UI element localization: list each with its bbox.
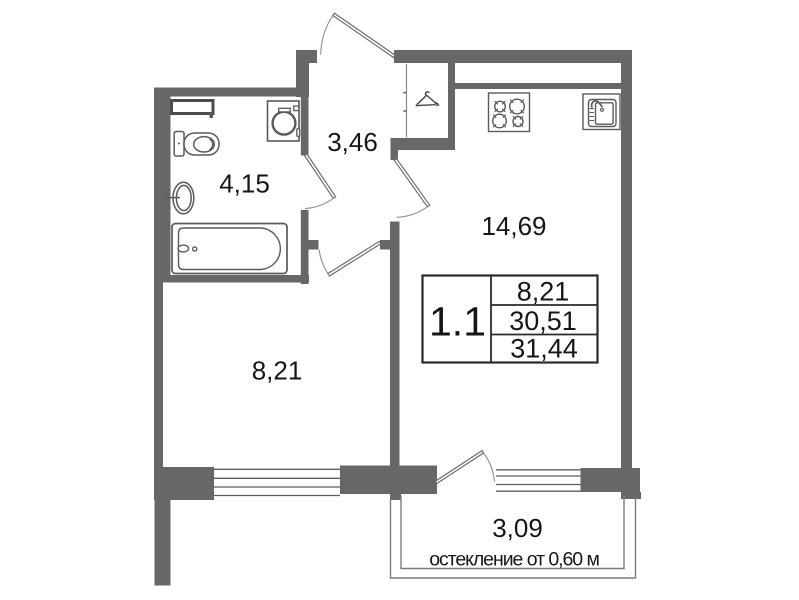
svg-text:8,21: 8,21 — [252, 356, 303, 386]
svg-text:3,46: 3,46 — [327, 127, 378, 157]
svg-text:3,09: 3,09 — [492, 513, 543, 543]
svg-text:31,44: 31,44 — [510, 334, 578, 364]
svg-text:1.1: 1.1 — [429, 299, 486, 345]
svg-text:остекление от 0,60 м: остекление от 0,60 м — [429, 549, 599, 571]
svg-text:4,15: 4,15 — [219, 168, 270, 198]
svg-text:14,69: 14,69 — [481, 211, 546, 241]
svg-text:30,51: 30,51 — [509, 306, 577, 336]
svg-text:8,21: 8,21 — [517, 277, 570, 307]
